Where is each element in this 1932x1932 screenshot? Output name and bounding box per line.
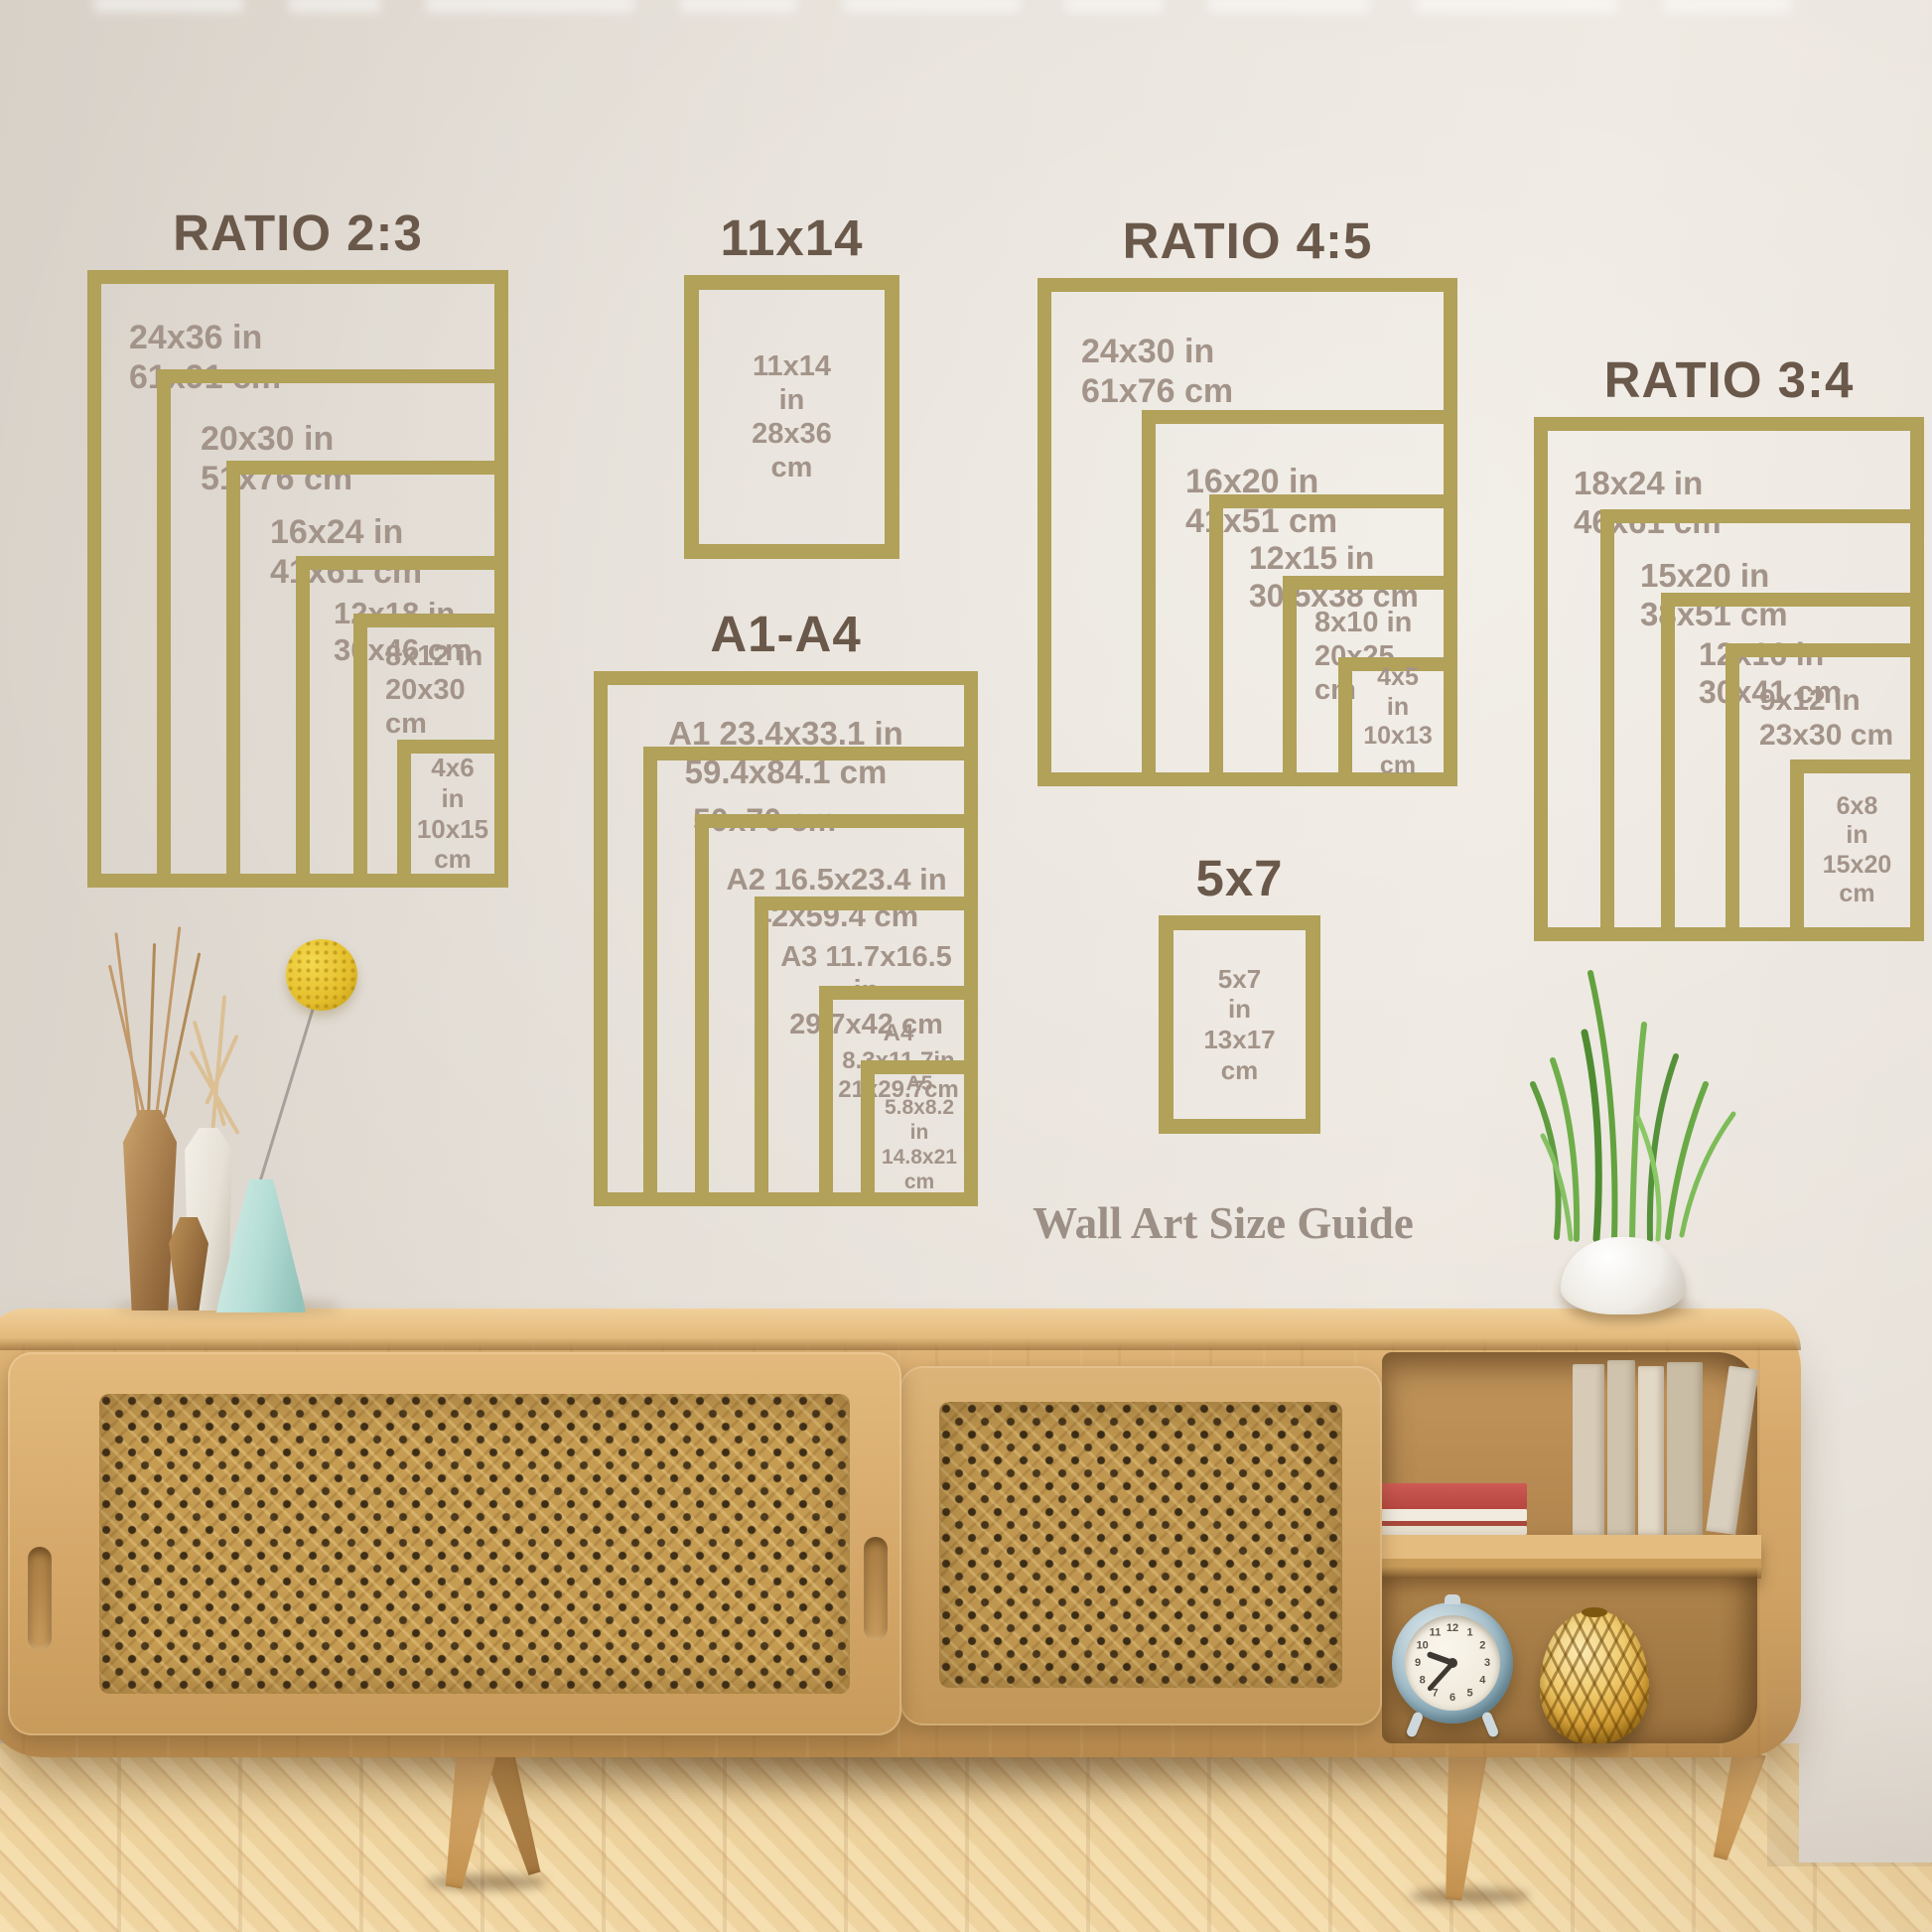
frame-5x7: 5x7 in 13x17 cm — [1159, 915, 1320, 1134]
size-set-a1-a4: A1-A4 A1 23.4x33.1 in 59.4x84.1 cm 50x70… — [594, 671, 978, 1206]
leg-shadow — [427, 1874, 546, 1890]
frame-4x6: 4x6 in 10x15 cm — [397, 740, 508, 888]
leg-shadow — [1410, 1888, 1529, 1904]
cane-panel — [939, 1402, 1342, 1688]
frame-11x14: 11x14 in 28x36 cm — [684, 275, 899, 559]
size-set-ratio-2-3: RATIO 2:3 24x36 in 61x91 cm 20x30 in 51x… — [87, 270, 508, 888]
cane-panel — [99, 1394, 850, 1694]
clock-numeral: 9 — [1415, 1657, 1421, 1669]
clock-numeral: 1 — [1466, 1627, 1472, 1639]
door-handle — [864, 1537, 888, 1640]
guide-caption: Wall Art Size Guide — [1013, 1197, 1434, 1249]
frame-6x8: 6x8 in 15x20 cm — [1790, 759, 1924, 941]
frame-label: 24x30 in 61x76 cm — [1081, 332, 1233, 411]
tall-brown-vase — [123, 1110, 177, 1311]
sideboard-top — [0, 1309, 1801, 1350]
alarm-clock: 12 1 2 3 4 5 6 7 8 9 10 11 — [1392, 1602, 1513, 1724]
clock-numeral: 5 — [1466, 1687, 1472, 1699]
size-set-11x14: 11x14 11x14 in 28x36 cm — [684, 275, 899, 559]
size-set-ratio-3-4: RATIO 3:4 18x24 in 46x61 cm 15x20 in 38x… — [1534, 417, 1924, 941]
clock-numeral: 3 — [1484, 1657, 1490, 1669]
wall-shade — [1767, 1628, 1932, 1866]
set-title-ratio-4-5: RATIO 4:5 — [1123, 215, 1373, 266]
stacked-books — [1378, 1483, 1527, 1535]
set-title-a1-a4: A1-A4 — [710, 609, 861, 659]
scene: RATIO 2:3 24x36 in 61x91 cm 20x30 in 51x… — [0, 0, 1932, 1932]
gold-lantern — [1540, 1611, 1649, 1743]
size-set-5x7: 5x7 5x7 in 13x17 cm — [1159, 915, 1320, 1134]
grass-plant — [1523, 967, 1753, 1262]
frame-label: A5 5.8x8.2 in 14.8x21 cm — [875, 1074, 964, 1192]
sliding-door-right — [899, 1366, 1382, 1725]
frame-label: 4x5 in 10x13 cm — [1352, 671, 1444, 772]
frame-label: 6x8 in 15x20 cm — [1804, 773, 1910, 927]
frame-a5: A5 5.8x8.2 in 14.8x21 cm — [861, 1060, 978, 1206]
cropped-watermark — [94, 0, 1791, 14]
frame-label: 5x7 in 13x17 cm — [1173, 930, 1306, 1119]
frame-label: 4x6 in 10x15 cm — [411, 754, 494, 874]
set-title-5x7: 5x7 — [1195, 853, 1283, 903]
frame-label: 11x14 in 28x36 cm — [699, 290, 885, 544]
clock-face: 12 1 2 3 4 5 6 7 8 9 10 11 — [1405, 1615, 1500, 1711]
door-handle — [28, 1547, 52, 1650]
clock-numeral: 8 — [1420, 1675, 1426, 1687]
frame-label: 8x12 in 20x30 cm — [385, 639, 494, 742]
clock-numeral: 11 — [1430, 1627, 1442, 1639]
clock-numeral: 10 — [1417, 1640, 1429, 1652]
books-row — [1573, 1356, 1743, 1535]
shelf — [1378, 1535, 1761, 1579]
set-title-ratio-3-4: RATIO 3:4 — [1604, 354, 1855, 405]
set-title-ratio-2-3: RATIO 2:3 — [173, 207, 423, 258]
clock-knob — [1445, 1594, 1460, 1604]
craspedia-flower — [286, 939, 357, 1011]
clock-center-pin — [1448, 1658, 1457, 1668]
clock-numeral: 2 — [1479, 1640, 1485, 1652]
clock-numeral: 4 — [1479, 1675, 1485, 1687]
set-title-11x14: 11x14 — [720, 212, 863, 263]
frame-4x5: 4x5 in 10x13 cm — [1338, 657, 1457, 786]
frame-label: 9x12 in 23x30 cm — [1759, 683, 1893, 754]
size-set-ratio-4-5: RATIO 4:5 24x30 in 61x76 cm 16x20 in 41x… — [1037, 278, 1457, 786]
clock-numeral: 12 — [1447, 1622, 1458, 1634]
clock-numeral: 6 — [1449, 1692, 1455, 1704]
sliding-door-left — [8, 1352, 901, 1735]
